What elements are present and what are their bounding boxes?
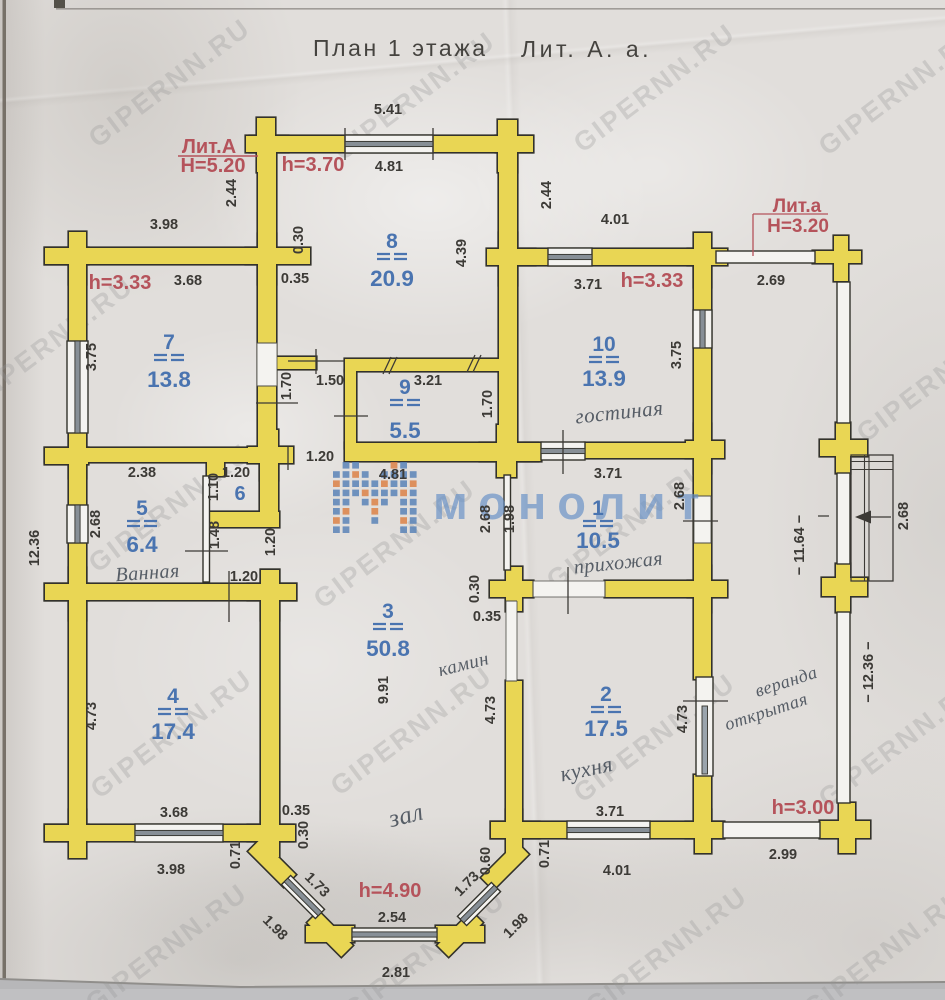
svg-text:17.5: 17.5 — [584, 716, 628, 741]
svg-text:50.8: 50.8 — [366, 636, 410, 661]
svg-text:4.73: 4.73 — [84, 702, 100, 730]
svg-text:7: 7 — [163, 331, 175, 354]
svg-text:h=3.00: h=3.00 — [772, 797, 835, 819]
svg-text:5.41: 5.41 — [374, 102, 402, 118]
svg-text:1.98: 1.98 — [502, 505, 518, 533]
svg-text:1.20: 1.20 — [222, 465, 250, 481]
svg-text:зал: зал — [385, 798, 426, 833]
svg-text:1.20: 1.20 — [263, 528, 279, 556]
svg-text:0.71: 0.71 — [537, 840, 553, 868]
svg-text:3.75: 3.75 — [84, 343, 100, 371]
svg-text:3.21: 3.21 — [414, 373, 442, 389]
svg-text:3: 3 — [382, 600, 394, 623]
svg-text:0.30: 0.30 — [291, 226, 307, 254]
svg-text:4.73: 4.73 — [675, 705, 691, 733]
svg-text:4.01: 4.01 — [601, 212, 629, 228]
svg-text:0.35: 0.35 — [281, 271, 309, 287]
svg-text:0.35: 0.35 — [282, 803, 310, 819]
svg-text:GIPERNN.RU: GIPERNN.RU — [80, 877, 253, 1000]
svg-text:h=4.90: h=4.90 — [359, 880, 422, 902]
svg-text:3.98: 3.98 — [157, 862, 185, 878]
svg-text:3.75: 3.75 — [669, 341, 685, 369]
svg-text:3.71: 3.71 — [594, 466, 622, 482]
svg-text:4.01: 4.01 — [603, 863, 631, 879]
svg-text:4: 4 — [167, 685, 179, 708]
svg-text:1.48: 1.48 — [207, 521, 223, 549]
svg-text:20.9: 20.9 — [370, 266, 414, 291]
svg-text:GIPERNN.RU: GIPERNN.RU — [851, 307, 945, 448]
svg-text:2.68: 2.68 — [88, 510, 104, 538]
svg-text:0.60: 0.60 — [478, 847, 494, 875]
svg-text:4.81: 4.81 — [379, 467, 407, 483]
svg-text:2.68: 2.68 — [478, 505, 494, 533]
svg-text:1.98: 1.98 — [259, 913, 290, 944]
svg-text:h=3.33: h=3.33 — [621, 270, 684, 292]
svg-text:2.69: 2.69 — [757, 273, 785, 289]
svg-text:4.39: 4.39 — [454, 239, 470, 267]
svg-text:h=3.70: h=3.70 — [282, 154, 345, 176]
svg-text:гостиная: гостиная — [574, 395, 664, 428]
svg-text:GIPERNN.RU: GIPERNN.RU — [325, 660, 498, 801]
svg-text:1.10: 1.10 — [206, 473, 222, 501]
svg-text:17.4: 17.4 — [151, 719, 195, 744]
svg-text:10.5: 10.5 — [576, 528, 620, 553]
svg-text:10: 10 — [592, 333, 615, 356]
svg-text:0.30: 0.30 — [296, 821, 312, 849]
svg-text:2.44: 2.44 — [224, 179, 240, 207]
svg-text:0.71: 0.71 — [228, 841, 244, 869]
svg-text:9: 9 — [399, 376, 411, 399]
svg-text:4.73: 4.73 — [483, 696, 499, 724]
svg-text:2.38: 2.38 — [128, 465, 156, 481]
svg-text:5.5: 5.5 — [389, 418, 420, 443]
svg-text:6: 6 — [234, 483, 245, 505]
svg-text:1.70: 1.70 — [480, 390, 496, 418]
svg-text:13.8: 13.8 — [147, 367, 191, 392]
svg-text:Ванная: Ванная — [115, 560, 181, 586]
svg-text:h=3.33: h=3.33 — [89, 272, 152, 294]
svg-text:13.9: 13.9 — [582, 366, 626, 391]
svg-text:3.98: 3.98 — [150, 217, 178, 233]
svg-text:2: 2 — [600, 683, 612, 706]
svg-text:0.35: 0.35 — [473, 609, 501, 625]
svg-text:1.50: 1.50 — [316, 373, 344, 389]
svg-text:2.44: 2.44 — [539, 181, 555, 209]
svg-text:6.4: 6.4 — [126, 532, 158, 557]
svg-text:0.30: 0.30 — [467, 575, 483, 603]
svg-text:3.68: 3.68 — [160, 805, 188, 821]
svg-text:8: 8 — [386, 230, 398, 253]
svg-text:GIPERNN.RU: GIPERNN.RU — [83, 12, 256, 153]
svg-text:2.99: 2.99 — [769, 847, 797, 863]
svg-text:Лит. А. а.: Лит. А. а. — [521, 36, 652, 62]
svg-text:5: 5 — [136, 497, 148, 520]
svg-text:− 12.36 −: − 12.36 − — [861, 641, 877, 702]
svg-text:− 11.64 −: − 11.64 − — [792, 515, 808, 575]
svg-text:3.68: 3.68 — [174, 273, 202, 289]
svg-text:GIPERNN.RU: GIPERNN.RU — [580, 880, 753, 1000]
svg-text:2.81: 2.81 — [382, 965, 410, 981]
svg-text:2.68: 2.68 — [672, 482, 688, 510]
svg-text:4.81: 4.81 — [375, 159, 403, 175]
svg-text:1.20: 1.20 — [230, 569, 258, 585]
svg-text:3.71: 3.71 — [574, 277, 602, 293]
svg-text:1: 1 — [592, 497, 604, 520]
svg-text:GIPERNN.RU: GIPERNN.RU — [813, 672, 945, 813]
svg-text:GIPERNN.RU: GIPERNN.RU — [813, 20, 945, 161]
svg-text:1.70: 1.70 — [279, 372, 295, 400]
svg-text:H=5.20: H=5.20 — [180, 155, 245, 177]
svg-text:План 1 этажа: План 1 этажа — [313, 35, 488, 61]
svg-text:1.98: 1.98 — [501, 911, 532, 942]
svg-text:9.91: 9.91 — [376, 676, 392, 704]
svg-text:2.54: 2.54 — [378, 910, 406, 926]
svg-text:монолит: монолит — [433, 476, 711, 529]
svg-text:12.36: 12.36 — [27, 530, 43, 566]
svg-text:1.20: 1.20 — [306, 449, 334, 465]
svg-text:3.71: 3.71 — [596, 804, 624, 820]
svg-text:2.68: 2.68 — [896, 502, 912, 530]
svg-text:H=3.20: H=3.20 — [767, 216, 829, 237]
